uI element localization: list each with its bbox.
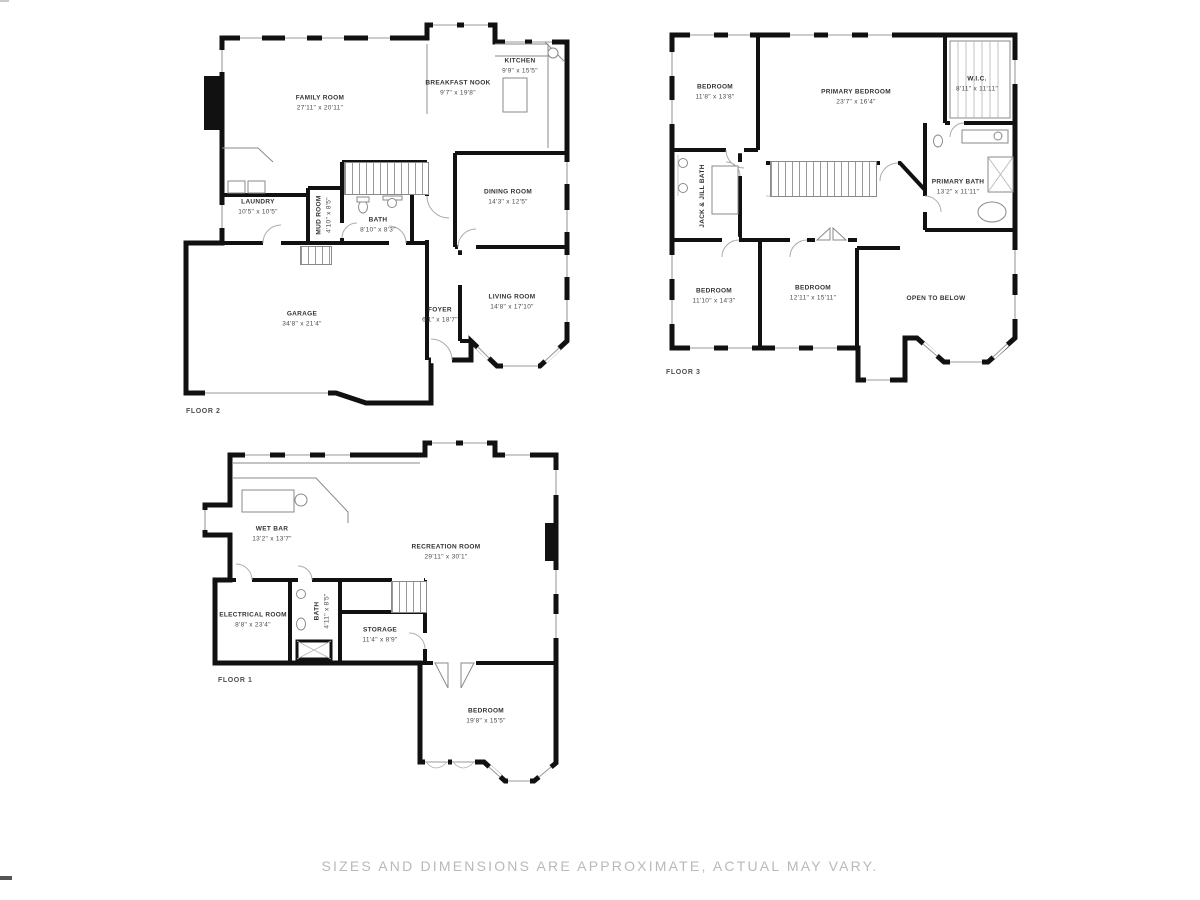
room-dims: 11'8" x 13'8" xyxy=(695,92,734,102)
sink-icon xyxy=(679,184,688,193)
room-name: FOYER xyxy=(422,305,458,315)
fireplace-block xyxy=(204,76,222,130)
floor2-stairs xyxy=(344,162,429,195)
fireplace-block xyxy=(545,523,557,561)
scan-artifact-bottom-left xyxy=(0,876,12,880)
sink-icon xyxy=(388,199,397,208)
room-dims: 8'8" x 23'4" xyxy=(219,620,287,630)
room-dims: 19'8" x 15'5" xyxy=(466,716,506,726)
room-name: FAMILY ROOM xyxy=(296,93,344,103)
room-name: OPEN TO BELOW xyxy=(906,294,965,304)
room-label-breakfast-nook: BREAKFAST NOOK 9'7" x 19'8" xyxy=(425,78,490,98)
room-name: LAUNDRY xyxy=(238,197,278,207)
room-label-wet-bar: WET BAR 13'2" x 13'7" xyxy=(252,524,292,544)
room-label-recreation-room: RECREATION ROOM 29'11" x 30'1" xyxy=(411,542,480,562)
room-dims: 27'11" x 20'11" xyxy=(296,103,344,113)
tub-icon xyxy=(978,202,1006,222)
room-name: PRIMARY BATH xyxy=(932,177,985,187)
toilet-icon xyxy=(297,618,306,630)
sink-icon xyxy=(994,132,1002,140)
sink-icon xyxy=(297,590,306,599)
room-label-mud-room: MUD ROOM 4'10" x 8'5" xyxy=(314,195,334,234)
room-label-living-room: LIVING ROOM 14'8" x 17'10" xyxy=(489,292,536,312)
room-name: BEDROOM xyxy=(790,283,836,293)
wet-bar-counter xyxy=(232,463,420,523)
room-label-wic: W.I.C. 8'11" x 11'11" xyxy=(956,74,998,94)
sink-icon xyxy=(679,159,688,168)
room-dims: 11'10" x 14'3" xyxy=(693,296,736,306)
room-name: DINING ROOM xyxy=(484,187,532,197)
room-label-foyer: FOYER 6'1" x 18'7" xyxy=(422,305,458,325)
room-dims: 29'11" x 30'1" xyxy=(411,552,480,562)
room-name: WET BAR xyxy=(252,524,292,534)
floor1-doors xyxy=(236,564,474,768)
corner-sink-icon xyxy=(548,48,558,58)
room-label-bedroom-3: BEDROOM 12'11" x 15'11" xyxy=(790,283,836,303)
floor2-stair-landing xyxy=(300,246,332,265)
room-label-primary-bedroom: PRIMARY BEDROOM 23'7" x 16'4" xyxy=(821,87,891,107)
room-dims: 4'11" x 8'5" xyxy=(322,593,332,628)
room-label-storage: STORAGE 11'4" x 8'9" xyxy=(362,625,397,645)
toilet-icon xyxy=(934,135,943,147)
room-label-jack-and-jill-bath: JACK & JILL BATH xyxy=(698,164,708,227)
room-label-primary-bath: PRIMARY BATH 13'2" x 11'11" xyxy=(932,177,985,197)
room-dims: 9'9" x 15'5" xyxy=(502,66,538,76)
room-label-family-room: FAMILY ROOM 27'11" x 20'11" xyxy=(296,93,344,113)
room-name: BEDROOM xyxy=(693,286,736,296)
room-name: ELECTRICAL ROOM xyxy=(219,610,287,620)
room-name: KITCHEN xyxy=(502,56,538,66)
toilet-icon xyxy=(359,201,368,213)
room-label-bedroom-2: BEDROOM 11'10" x 14'3" xyxy=(693,286,736,306)
room-label-bedroom-lower: BEDROOM 19'8" x 15'5" xyxy=(466,706,506,726)
room-name: BREAKFAST NOOK xyxy=(425,78,490,88)
room-dims: 23'7" x 16'4" xyxy=(821,97,891,107)
room-label-kitchen: KITCHEN 9'9" x 15'5" xyxy=(502,56,538,76)
room-label-laundry: LAUNDRY 10'5" x 10'5" xyxy=(238,197,278,217)
floor-plan-sheet: FAMILY ROOM 27'11" x 20'11" BREAKFAST NO… xyxy=(0,0,1200,900)
disclaimer-text: SIZES AND DIMENSIONS ARE APPROXIMATE, AC… xyxy=(0,858,1200,874)
room-dims: 34'8" x 21'4" xyxy=(282,319,322,329)
room-dims: 6'1" x 18'7" xyxy=(422,315,458,325)
room-label-bedroom-1: BEDROOM 11'8" x 13'8" xyxy=(695,82,734,102)
room-dims: 12'11" x 15'11" xyxy=(790,293,836,303)
room-name: JACK & JILL BATH xyxy=(698,164,708,227)
room-dims: 9'7" x 19'8" xyxy=(425,88,490,98)
room-label-electrical-room: ELECTRICAL ROOM 8'8" x 23'4" xyxy=(219,610,287,630)
room-label-dining-room: DINING ROOM 14'3" x 12'5" xyxy=(484,187,532,207)
room-dims: 11'4" x 8'9" xyxy=(362,635,397,645)
room-name: MUD ROOM xyxy=(314,195,324,234)
floor1-stairs xyxy=(391,581,427,613)
room-dims: 8'10" x 8'3" xyxy=(360,225,396,235)
room-name: BATH xyxy=(312,593,322,628)
room-name: STORAGE xyxy=(362,625,397,635)
floor1-caption: FLOOR 1 xyxy=(218,677,253,684)
room-name: BEDROOM xyxy=(695,82,734,92)
tub xyxy=(712,166,738,214)
room-dims: 13'2" x 13'7" xyxy=(252,534,292,544)
room-name: GARAGE xyxy=(282,309,322,319)
room-name: W.I.C. xyxy=(956,74,998,84)
scan-artifact-top-left xyxy=(0,0,9,2)
room-dims: 4'10" x 8'5" xyxy=(324,195,334,234)
room-label-garage: GARAGE 34'8" x 21'4" xyxy=(282,309,322,329)
room-name: LIVING ROOM xyxy=(489,292,536,302)
room-dims: 10'5" x 10'5" xyxy=(238,207,278,217)
room-label-open-to-below: OPEN TO BELOW xyxy=(906,294,965,304)
room-name: RECREATION ROOM xyxy=(411,542,480,552)
room-name: BEDROOM xyxy=(466,706,506,716)
room-dims: 13'2" x 11'11" xyxy=(932,187,985,197)
floor3-caption: FLOOR 3 xyxy=(666,369,701,376)
room-label-bath: BATH 8'10" x 8'3" xyxy=(360,215,396,235)
room-dims: 14'3" x 12'5" xyxy=(484,197,532,207)
room-dims: 14'8" x 17'10" xyxy=(489,302,536,312)
room-name: BATH xyxy=(360,215,396,225)
french-door-icon xyxy=(435,663,474,688)
stool-icon xyxy=(295,494,307,506)
room-name: PRIMARY BEDROOM xyxy=(821,87,891,97)
room-dims: 8'11" x 11'11" xyxy=(956,84,998,94)
floor2-caption: FLOOR 2 xyxy=(186,408,221,415)
room-label-bath-lower: BATH 4'11" x 8'5" xyxy=(312,593,332,628)
floor3-stairs xyxy=(770,161,877,197)
